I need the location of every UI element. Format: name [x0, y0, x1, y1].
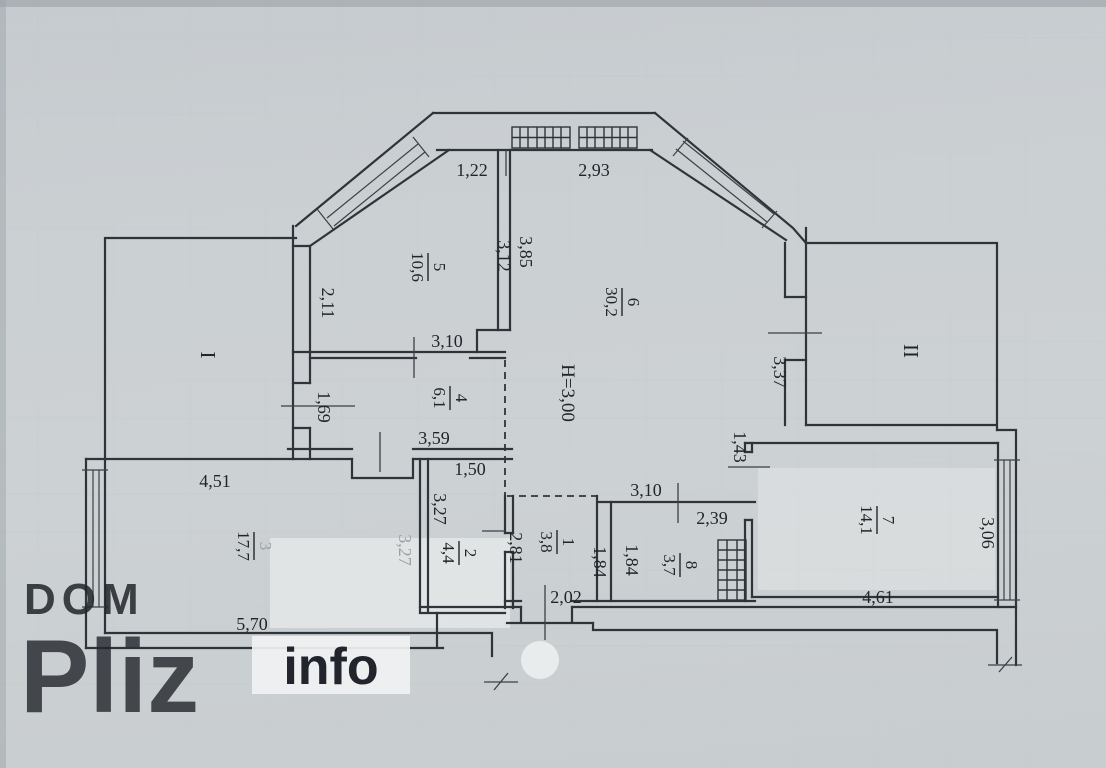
dim-bay-right: 2,93 — [578, 160, 610, 180]
dim-room2-height: 3,27 — [430, 493, 450, 525]
room-label-8: 8 3,7 — [660, 553, 701, 577]
room-label-1: 1 3,8 — [537, 530, 578, 554]
room-label-5: 5 10,6 — [408, 252, 449, 282]
dim-room8-height: 1,84 — [622, 544, 642, 576]
dim-room6-right: 3,37 — [770, 356, 790, 388]
dim-bay-left: 1,22 — [456, 160, 488, 180]
dim-room8-width: 2,39 — [696, 508, 728, 528]
dim-room3-top: 4,51 — [199, 471, 231, 491]
balcony-right-label: II — [899, 344, 923, 358]
dim-room3-right: 3,27 — [395, 534, 415, 566]
radiator-grid-icon — [512, 127, 637, 148]
dim-room4-width: 3,59 — [418, 428, 450, 448]
dim-room7-width: 4,61 — [862, 587, 894, 607]
dim-room1-height: 1,84 — [590, 546, 610, 578]
watermark-dom: DOM — [24, 575, 145, 624]
svg-text:17,7: 17,7 — [234, 531, 253, 561]
floor-plan: 1,22 2,93 3,10 3,59 1,50 4,51 5,70 2,02 … — [0, 0, 1106, 768]
svg-text:3,8: 3,8 — [537, 531, 556, 552]
dim-room1-width: 2,02 — [550, 587, 582, 607]
watermark-info: info — [283, 638, 378, 696]
svg-text:4: 4 — [452, 394, 471, 403]
watermark-dot — [521, 641, 559, 679]
svg-text:1: 1 — [559, 538, 578, 547]
scan-edge-top — [0, 0, 1106, 7]
dim-room8-top: 3,10 — [630, 480, 662, 500]
dim-room4-door: 1,69 — [314, 391, 334, 423]
dim-room7-height: 3,06 — [978, 517, 998, 549]
svg-text:7: 7 — [879, 516, 898, 525]
dim-room3-bottom: 5,70 — [236, 614, 268, 634]
svg-text:8: 8 — [682, 561, 701, 570]
svg-text:2: 2 — [461, 549, 480, 558]
svg-text:10,6: 10,6 — [408, 252, 427, 282]
dim-room5-width: 3,10 — [431, 331, 463, 351]
watermark-pliz: Pliz — [20, 619, 199, 735]
room-label-6: 6 30,2 — [602, 287, 643, 317]
svg-text:30,2: 30,2 — [602, 287, 621, 317]
svg-text:14,1: 14,1 — [857, 505, 876, 535]
svg-text:3,7: 3,7 — [660, 554, 679, 576]
dim-room5-height: 3,12 — [494, 240, 514, 272]
room-label-3: 3 17,7 — [234, 531, 275, 561]
dim-room2-width: 1,50 — [454, 459, 486, 479]
balcony-left-label: I — [196, 352, 220, 359]
room-label-4: 4 6,1 — [430, 386, 471, 410]
scanned-floor-plan-photo: 1,22 2,93 3,10 3,59 1,50 4,51 5,70 2,02 … — [0, 0, 1106, 768]
dim-room5-left: 2,11 — [318, 288, 338, 319]
svg-text:5: 5 — [430, 263, 449, 272]
ceiling-height-note: H=3,00 — [557, 364, 578, 422]
dim-room2-right: 2,81 — [506, 532, 526, 564]
svg-text:6: 6 — [624, 298, 643, 307]
svg-text:6,1: 6,1 — [430, 387, 449, 408]
dim-room7-door: 1,43 — [730, 431, 750, 463]
svg-text:4,4: 4,4 — [439, 542, 458, 564]
dim-room6-height: 3,85 — [516, 236, 536, 268]
scan-edge-left — [0, 0, 6, 768]
svg-text:3: 3 — [256, 542, 275, 551]
